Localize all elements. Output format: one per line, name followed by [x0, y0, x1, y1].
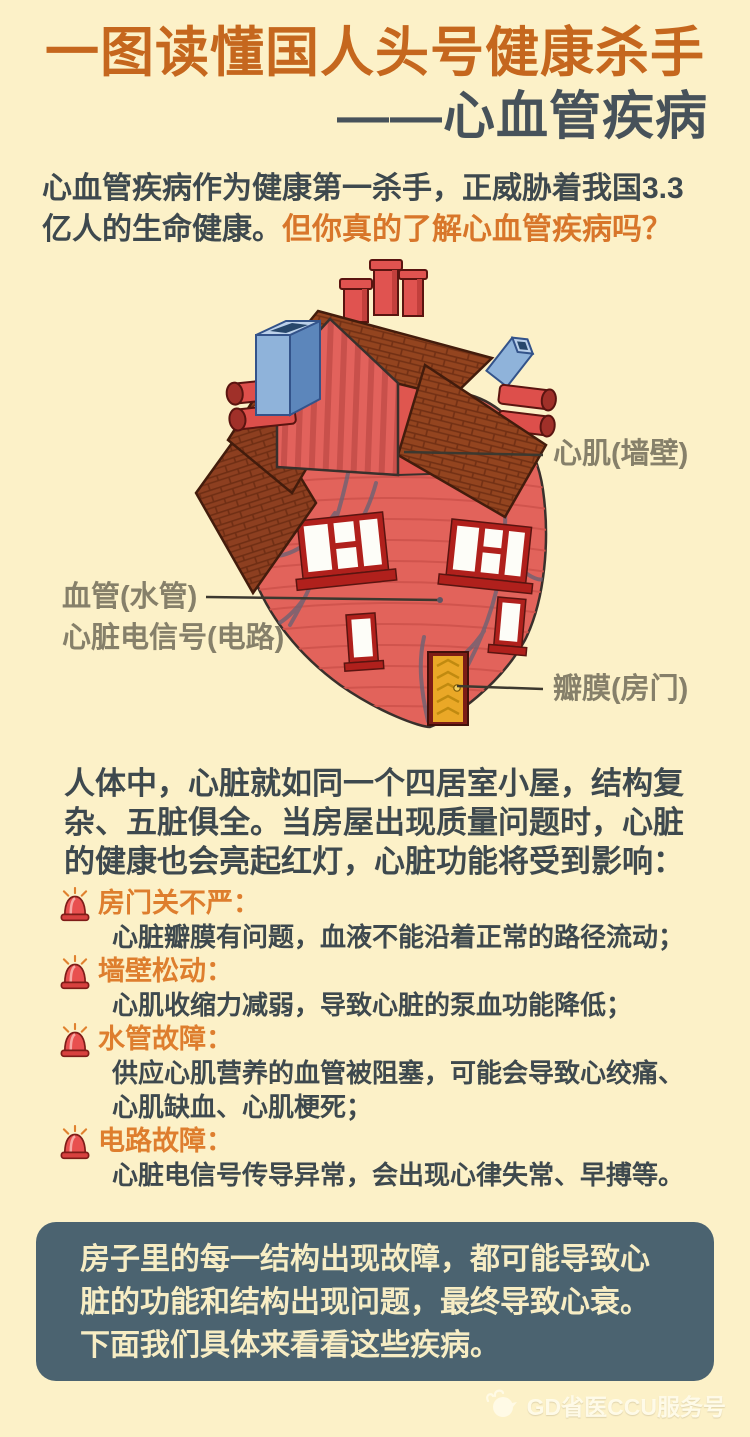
label-vessel: 血管(水管): [62, 579, 197, 613]
alert-title: 电路故障：: [98, 1124, 702, 1158]
alert-list: 房门关不严： 心脏瓣膜有问题，血液不能沿着正常的路径流动； 墙壁松动： 心肌收缩…: [62, 886, 702, 1192]
blue-vent: [486, 331, 537, 386]
summary-box: 房子里的每一结构出现故障，都可能导致心脏的功能和结构出现问题，最终导致心衰。下面…: [36, 1222, 714, 1381]
siren-icon: [58, 955, 92, 991]
label-valve: 瓣膜(房门): [553, 672, 688, 705]
alert-desc: 心肌收缩力减弱，导致心脏的泵血功能降低；: [112, 988, 694, 1022]
window-right: [438, 518, 538, 593]
alert-item-door: 房门关不严： 心脏瓣膜有问题，血液不能沿着正常的路径流动；: [62, 886, 702, 954]
red-chimneys: [340, 260, 427, 322]
analogy-paragraph: 人体中，心脏就如同一个四居室小屋，结构复杂、五脏俱全。当房屋出现质量问题时，心脏…: [64, 764, 696, 881]
wechat-account-logo-icon: [482, 1389, 520, 1421]
blue-chimney: [256, 321, 320, 415]
watermark-text: GD省医CCU服务号: [527, 1388, 726, 1422]
label-dot-vessel: [437, 597, 443, 603]
window-left: [290, 511, 397, 590]
page-subtitle: ——心血管疾病: [0, 88, 708, 146]
alert-title: 房门关不严：: [98, 886, 702, 920]
label-myocardium: 心肌(墙壁): [553, 437, 688, 470]
alert-desc: 供应心肌营养的血管被阻塞，可能会导致心绞痛、心肌缺血、心肌梗死；: [112, 1056, 694, 1124]
intro-question: 但你真的了解心血管疾病吗？: [282, 213, 672, 246]
alert-item-pipe: 水管故障： 供应心肌营养的血管被阻塞，可能会导致心绞痛、心肌缺血、心肌梗死；: [62, 1022, 702, 1124]
page-title: 一图读懂国人头号健康杀手: [0, 22, 750, 84]
siren-icon: [58, 1125, 92, 1161]
alert-item-wall: 墙壁松动： 心肌收缩力减弱，导致心脏的泵血功能降低；: [62, 954, 702, 1022]
alert-item-circuit: 电路故障： 心脏电信号传导异常，会出现心律失常、早搏等。: [62, 1124, 702, 1192]
door: [428, 652, 468, 725]
intro-paragraph: 心血管疾病作为健康第一杀手，正威胁着我国3.3亿人的生命健康。但你真的了解心血管…: [42, 168, 704, 250]
heart-house-illustration: 心肌(墙壁) 血管(水管) 心脏电信号(电路) 瓣膜(房门): [0, 255, 750, 745]
siren-icon: [58, 887, 92, 923]
alert-desc: 心脏电信号传导异常，会出现心律失常、早搏等。: [112, 1158, 694, 1192]
summary-text: 房子里的每一结构出现故障，都可能导致心脏的功能和结构出现问题，最终导致心衰。下面…: [80, 1238, 670, 1367]
alert-title: 墙壁松动：: [98, 954, 702, 988]
alert-desc: 心脏瓣膜有问题，血液不能沿着正常的路径流动；: [112, 920, 694, 954]
label-signal: 心脏电信号(电路): [62, 620, 284, 654]
siren-icon: [58, 1023, 92, 1059]
watermark: GD省医CCU服务号: [482, 1388, 726, 1422]
alert-title: 水管故障：: [98, 1022, 702, 1056]
